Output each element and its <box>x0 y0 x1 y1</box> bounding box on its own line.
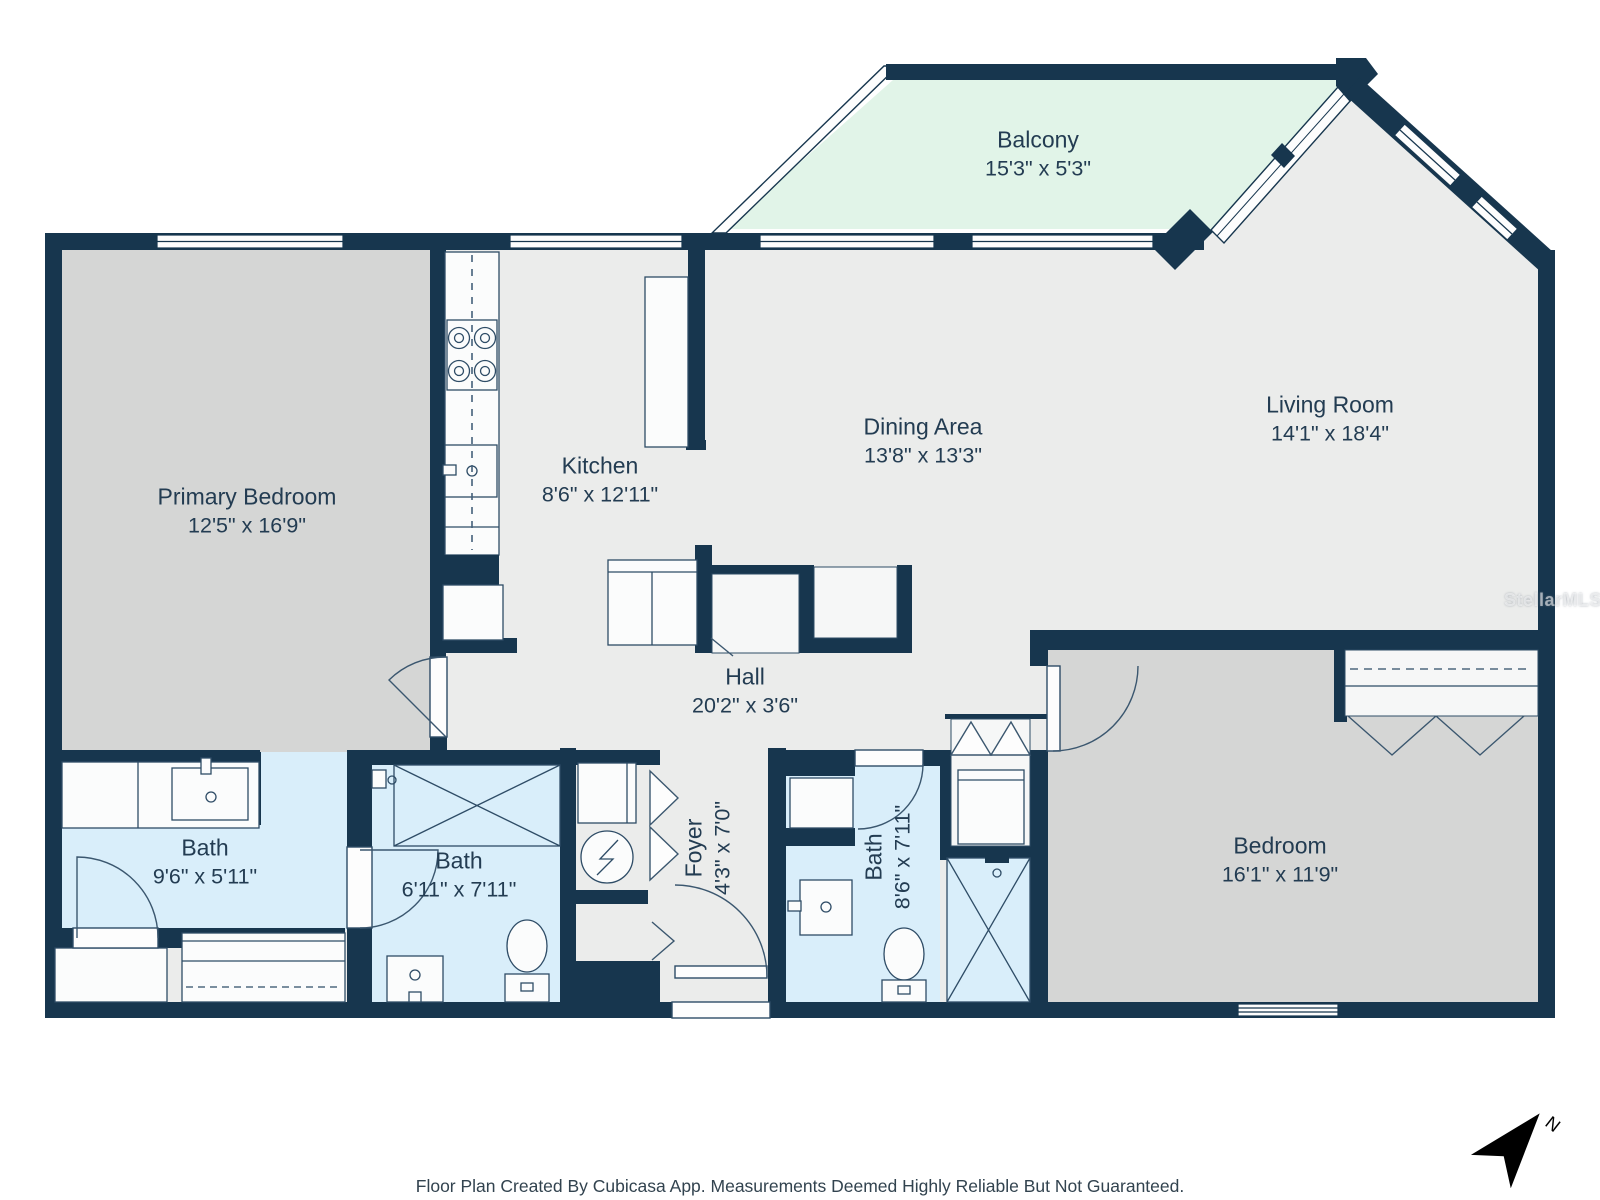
window-icon <box>972 235 1153 248</box>
north-arrow-icon <box>1462 1088 1572 1188</box>
room-label-balcony: Balcony 15'3" x 5'3" <box>985 128 1091 180</box>
room-label-dining-area: Dining Area 13'8" x 13'3" <box>864 415 983 467</box>
room-label-hall: Hall 20'2" x 3'6" <box>692 665 798 717</box>
toilet-icon <box>505 920 549 1002</box>
bedroom-closet <box>1345 650 1538 716</box>
room-name: Primary Bedroom <box>158 485 337 508</box>
sink-icon <box>443 445 497 497</box>
room-name: Bath <box>402 849 517 872</box>
window-icon <box>510 235 682 248</box>
room-dims: 8'6" x 12'11" <box>542 484 658 506</box>
room-dims: 12'5" x 16'9" <box>158 515 337 537</box>
room-name: Balcony <box>985 128 1091 151</box>
room-name: Foyer <box>682 801 705 895</box>
shower-icon <box>372 765 560 846</box>
room-name: Bedroom <box>1222 834 1338 857</box>
alcove-a <box>712 574 799 653</box>
room-name: Hall <box>692 665 798 688</box>
room-dims: 6'11" x 7'11" <box>402 879 517 901</box>
window-icon <box>157 235 343 248</box>
room-dims: 9'6" x 5'11" <box>153 866 257 888</box>
shower-icon <box>947 856 1030 1002</box>
sink-icon <box>387 956 443 1002</box>
floor-plan-page: Balcony 15'3" x 5'3" Primary Bedroom 12'… <box>0 0 1600 1200</box>
appliance <box>958 770 1024 844</box>
bath3-niche <box>790 778 853 828</box>
toilet-icon <box>882 928 926 1002</box>
refrigerator-icon <box>608 560 697 645</box>
compass: N <box>1462 1088 1572 1193</box>
alcove-b <box>814 567 897 638</box>
room-name: Dining Area <box>864 415 983 438</box>
footer-disclaimer: Floor Plan Created By Cubicasa App. Meas… <box>0 1176 1600 1197</box>
room-label-bath-3: Bath 8'6" x 7'11" <box>862 805 914 909</box>
room-dims: 8'6" x 7'11" <box>892 805 914 909</box>
room-label-bath-2: Bath 6'11" x 7'11" <box>402 849 517 901</box>
room-label-bedroom: Bedroom 16'1" x 11'9" <box>1222 834 1338 886</box>
room-name: Bath <box>153 836 257 859</box>
room-name: Kitchen <box>542 454 658 477</box>
room-dims: 4'3" x 7'0" <box>712 801 734 895</box>
room-label-primary-bedroom: Primary Bedroom 12'5" x 16'9" <box>158 485 337 537</box>
room-label-kitchen: Kitchen 8'6" x 12'11" <box>542 454 658 506</box>
counter-block <box>437 555 499 585</box>
stellar-mls-watermark: StellarMLS <box>1504 590 1600 611</box>
wall-balcony-top <box>886 64 1364 80</box>
linen-closet <box>55 948 167 1002</box>
room-label-foyer: Foyer 4'3" x 7'0" <box>682 801 734 895</box>
shelf-closet <box>182 933 345 1002</box>
window-icon <box>760 235 934 248</box>
wall-left <box>45 233 62 1018</box>
room-dims: 16'1" x 11'9" <box>1222 864 1338 886</box>
room-label-living-room: Living Room 14'1" x 18'4" <box>1266 393 1394 445</box>
vanity-sink <box>62 758 259 828</box>
pantry-cabinet <box>645 277 688 447</box>
room-label-bath-1: Bath 9'6" x 5'11" <box>153 836 257 888</box>
room-dims: 15'3" x 5'3" <box>985 158 1091 180</box>
room-dims: 20'2" x 3'6" <box>692 695 798 717</box>
kitchen-cabinet <box>443 585 503 640</box>
room-name: Living Room <box>1266 393 1394 416</box>
room-name: Bath <box>862 805 885 909</box>
room-dims: 14'1" x 18'4" <box>1266 423 1394 445</box>
room-dims: 13'8" x 13'3" <box>864 445 983 467</box>
window-icon <box>1238 1004 1338 1016</box>
water-heater-icon <box>578 763 636 883</box>
floor-plan-drawing <box>0 0 1600 1200</box>
